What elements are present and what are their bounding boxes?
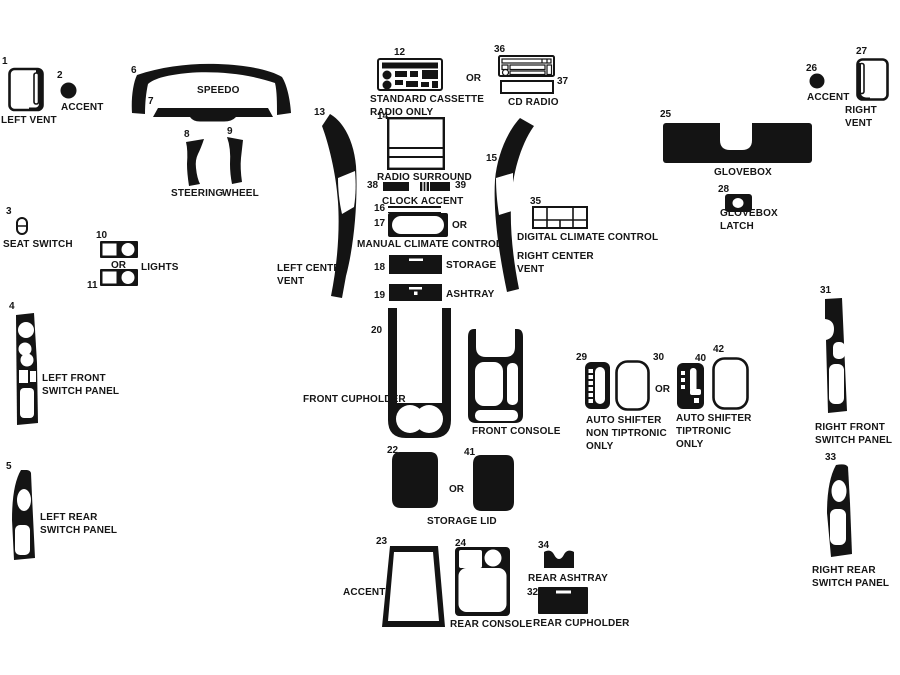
shifter-surround-shape-30 [615,360,650,411]
cd-radio-trim-shape [500,80,554,94]
lights-switch-shape-10 [100,241,138,258]
accent-bottom-label: ACCENT [343,586,386,599]
auto-shifter-tiptronic-label: AUTO SHIFTER TIPTRONIC ONLY [676,412,752,451]
rear-cupholder-shape [538,587,588,614]
steering-trim-right-shape [225,137,245,184]
seat-switch-label: SEAT SWITCH [3,238,73,251]
clock-accent-bar-39 [430,182,450,191]
right-front-switch-panel-label: RIGHT FRONT SWITCH PANEL [815,421,892,447]
right-rear-switch-panel-label: RIGHT REAR SWITCH PANEL [812,564,889,590]
right-front-switch-panel-shape [823,298,849,413]
right-vent-shape [856,57,889,102]
digital-climate-control-shape [532,206,588,229]
part-number-11: 11 [87,280,98,291]
or-label-shifter: OR [655,384,670,395]
speedo-label: SPEEDO [197,84,240,97]
part-number-19: 19 [374,290,385,301]
manual-climate-control-label: MANUAL CLIMATE CONTROL [357,238,502,251]
speedo-lower-trim-shape [153,107,273,122]
part-number-33: 33 [825,452,836,463]
dash-kit-diagram: 1 LEFT VENT 2 ACCENT 6 SPEEDO 7 8 9 STEE… [0,0,900,675]
right-vent-label: RIGHT VENT [845,104,900,130]
seat-switch-shape [16,217,28,235]
left-rear-switch-panel-shape [11,470,36,560]
left-vent-label: LEFT VENT [1,114,57,127]
left-rear-switch-panel-label: LEFT REAR SWITCH PANEL [40,511,117,537]
cd-radio-label: CD RADIO [508,96,559,109]
glovebox-latch-label: GLOVEBOX LATCH [720,207,778,233]
accent-circle-shape [60,82,77,99]
manual-climate-control-shape [388,213,448,237]
storage-lid-shape-22 [392,452,438,508]
part-number-36: 36 [494,44,505,55]
cd-radio-shape [498,55,555,77]
climate-trim-line-shape [388,206,441,213]
part-number-9: 9 [227,126,233,137]
left-center-vent-label: LEFT CENTER VENT [277,262,348,288]
part-number-20: 20 [371,325,382,336]
part-number-38: 38 [367,180,378,191]
auto-shifter-tiptronic-shape [677,363,704,409]
rear-ashtray-label: REAR ASHTRAY [528,572,608,585]
storage-lid-label: STORAGE LID [427,515,497,528]
part-number-3: 3 [6,206,12,217]
front-console-shape [468,329,523,424]
part-number-7: 7 [148,96,154,107]
part-number-32: 32 [527,587,538,598]
left-vent-shape [8,66,46,113]
or-label-radio: OR [466,73,481,84]
rear-cupholder-label: REAR CUPHOLDER [533,617,630,630]
clock-accent-bar-38 [383,182,409,191]
part-number-27: 27 [856,46,867,57]
clock-accent-striped-shape [420,182,429,191]
accent-label: ACCENT [61,101,104,114]
left-front-switch-panel-label: LEFT FRONT SWITCH PANEL [42,372,119,398]
ashtray-shape [389,284,442,301]
part-number-25: 25 [660,109,671,120]
storage-door-shape [389,255,442,274]
glovebox-shape [663,123,812,163]
part-number-30: 30 [653,352,664,363]
steering-label: STEERING [171,187,223,200]
rear-console-shape [455,547,510,616]
right-center-vent-shape [492,118,536,292]
accent-right-label: ACCENT [807,91,850,104]
steering-trim-left-shape [185,139,205,186]
rear-ashtray-shape [544,549,574,568]
part-number-18: 18 [374,262,385,273]
left-front-switch-panel-shape [13,313,40,425]
digital-climate-control-label: DIGITAL CLIMATE CONTROL [517,231,658,244]
part-number-16: 16 [374,203,385,214]
front-console-label: FRONT CONSOLE [472,425,561,438]
part-number-12: 12 [394,47,405,58]
part-number-42: 42 [713,344,724,355]
lights-label: LIGHTS [141,261,179,274]
cassette-radio-shape [377,58,443,91]
right-rear-switch-panel-shape [825,463,852,557]
part-number-17: 17 [374,218,385,229]
shifter-surround-shape-42 [712,357,749,410]
storage-lid-shape-41 [473,455,514,511]
wheel-label: WHEEL [222,187,259,200]
or-label-climate: OR [452,220,467,231]
auto-shifter-non-tiptronic-label: AUTO SHIFTER NON TIPTRONIC ONLY [586,414,667,453]
part-number-39: 39 [455,180,466,191]
front-cupholder-shape [388,308,451,438]
part-number-4: 4 [9,301,15,312]
auto-shifter-non-tiptronic-shape [585,362,610,409]
accent-circle-right-shape [809,73,825,89]
glovebox-label: GLOVEBOX [714,166,772,179]
accent-frame-shape [382,546,445,627]
part-number-31: 31 [820,285,831,296]
radio-surround-shape [387,117,445,170]
lights-switch-shape-11 [100,269,138,286]
ashtray-label: ASHTRAY [446,288,494,301]
storage-label: STORAGE [446,259,496,272]
or-label-storage-lid: OR [449,484,464,495]
part-number-2: 2 [57,70,63,81]
part-number-10: 10 [96,230,107,241]
front-cupholder-label: FRONT CUPHOLDER [303,393,406,406]
part-number-37: 37 [557,76,568,87]
rear-console-label: REAR CONSOLE [450,618,532,631]
part-number-1: 1 [2,56,8,67]
